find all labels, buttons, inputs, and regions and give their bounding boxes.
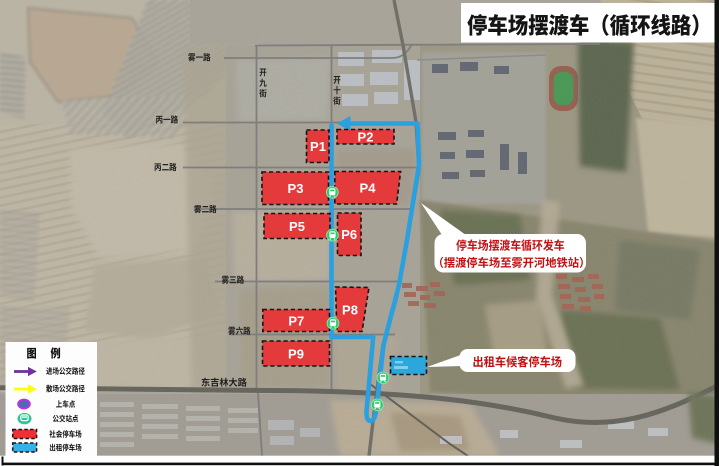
svg-text:P7: P7	[288, 313, 304, 328]
svg-text:P4: P4	[360, 181, 377, 196]
svg-text:P6: P6	[341, 227, 357, 242]
svg-text:P3: P3	[288, 181, 304, 196]
svg-text:P2: P2	[358, 129, 374, 144]
svg-text:P9: P9	[288, 346, 304, 361]
svg-text:P8: P8	[342, 303, 358, 318]
svg-text:P1: P1	[310, 139, 326, 154]
svg-text:P5: P5	[289, 219, 305, 234]
